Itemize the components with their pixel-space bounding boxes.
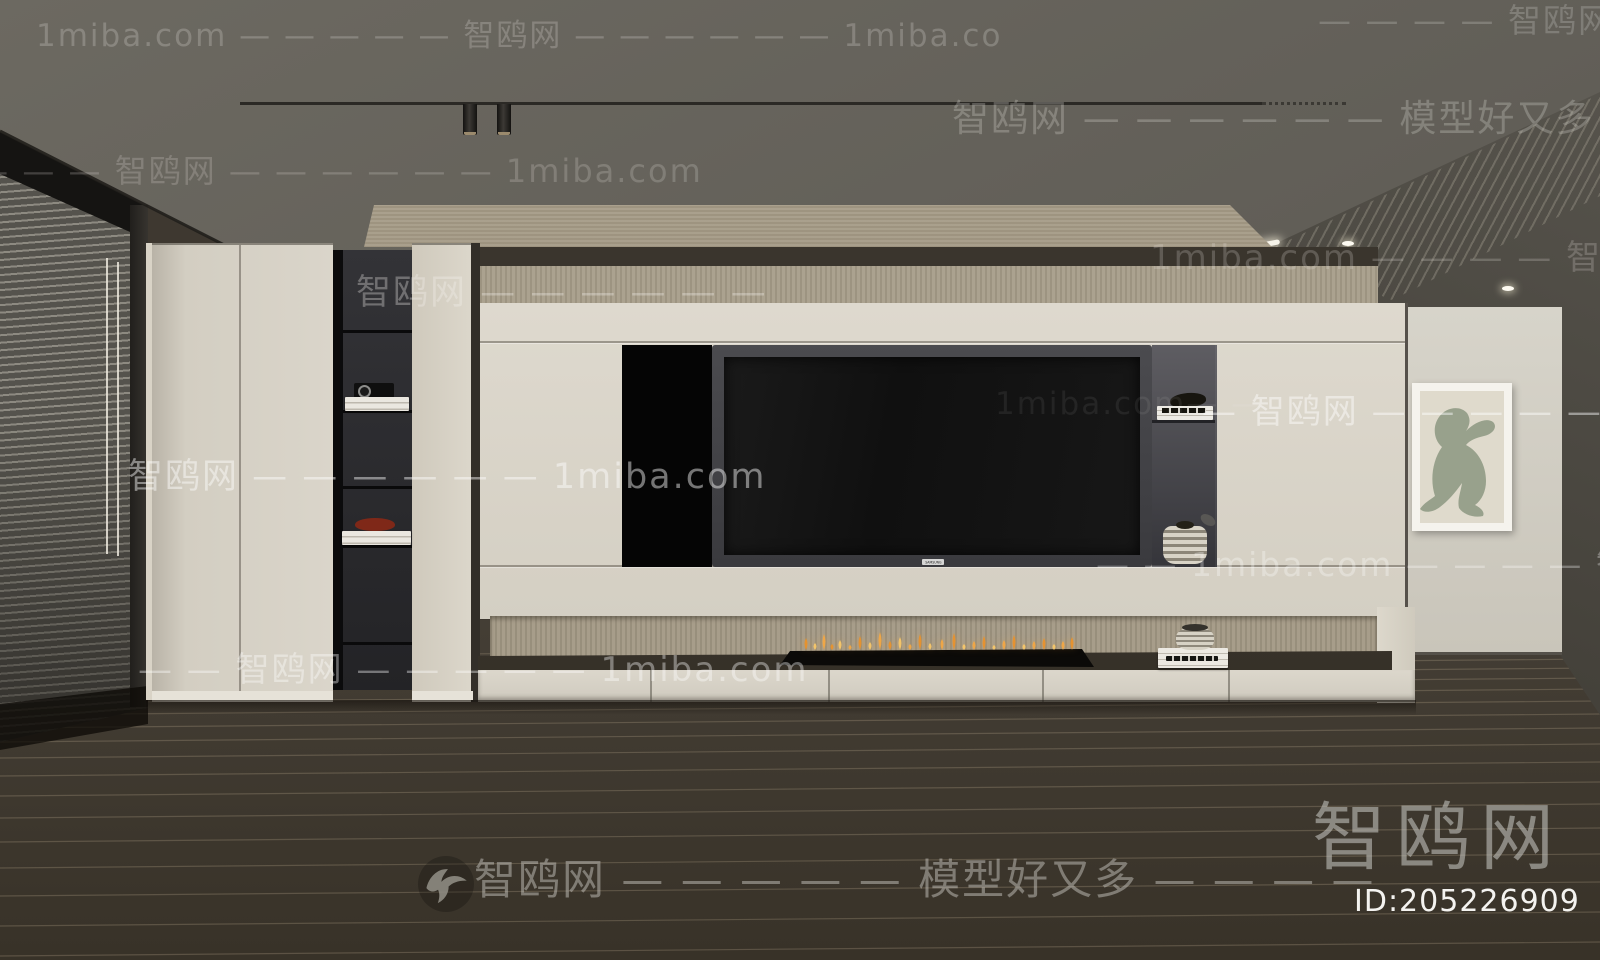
shelf-board	[343, 330, 412, 333]
cabinet-door-seam	[239, 245, 241, 698]
seagull-icon	[413, 851, 479, 917]
living-room-render: SAMSUNG 1miba.com — — — — — 智鸥网 — —	[0, 0, 1600, 960]
counter-ribbed-bowl	[1176, 627, 1214, 650]
site-logo: 智鸥网	[1312, 778, 1564, 885]
cabinet-column	[412, 243, 473, 702]
panel-gap-shadow	[471, 243, 480, 702]
cabinet-kickboard	[412, 691, 473, 700]
wall-art-figure	[1412, 383, 1512, 531]
shelf-camera	[354, 383, 394, 398]
fireplace-flames	[800, 616, 1090, 654]
niche-ribbed-vase	[1163, 526, 1207, 564]
shelf-books	[345, 397, 409, 411]
shelf-red-bowl	[355, 518, 395, 531]
vase-lid	[1176, 521, 1194, 529]
tv-brand-text: SAMSUNG	[925, 560, 941, 564]
bowl-lid	[1182, 624, 1208, 631]
blind-cord	[106, 258, 108, 554]
recessed-light	[1502, 286, 1514, 291]
shelf-books	[342, 531, 411, 545]
drawer-seam	[1042, 670, 1044, 702]
cabinet-kickboard	[152, 691, 333, 700]
ceiling-light-track	[240, 102, 1262, 105]
recess-shadow-band	[480, 247, 1378, 268]
niche-side-shadow	[333, 250, 343, 690]
spotlight-cylinder	[497, 104, 511, 135]
wood-trim-top	[480, 266, 1378, 305]
panel-groove	[478, 341, 1405, 343]
tv-brand-label: SAMSUNG	[922, 559, 944, 565]
black-recess-niche	[622, 345, 712, 567]
blind-cord	[117, 262, 119, 556]
book-spine-text	[1162, 408, 1206, 413]
wall-art-frame	[1412, 383, 1512, 531]
shelf-board	[343, 486, 412, 489]
spotlight-cylinder	[463, 104, 477, 135]
book-spine-text	[1166, 656, 1218, 661]
counter-books	[1158, 648, 1228, 668]
cabinet-floor-shadow	[146, 700, 1416, 715]
model-id: ID:205226909	[1354, 884, 1580, 919]
tv: SAMSUNG	[712, 345, 1152, 567]
drawer-seam	[650, 670, 652, 702]
niche-shelf	[1152, 420, 1215, 423]
cabinet-doors	[152, 243, 333, 702]
art-figure-path	[1420, 408, 1495, 517]
recessed-light	[1342, 241, 1354, 246]
drawer-seam	[1228, 670, 1230, 702]
drawer-seam	[828, 670, 830, 702]
shelf-niche-left	[333, 250, 412, 690]
niche-books	[1157, 406, 1213, 420]
shelf-board	[343, 545, 412, 548]
tv-screen	[724, 357, 1140, 555]
bird-logo-icon	[418, 856, 474, 912]
shelf-board	[343, 642, 412, 645]
drawer-unit	[478, 670, 1415, 702]
ceiling-track-dashes	[1262, 102, 1346, 105]
display-niche-right	[1152, 345, 1217, 567]
